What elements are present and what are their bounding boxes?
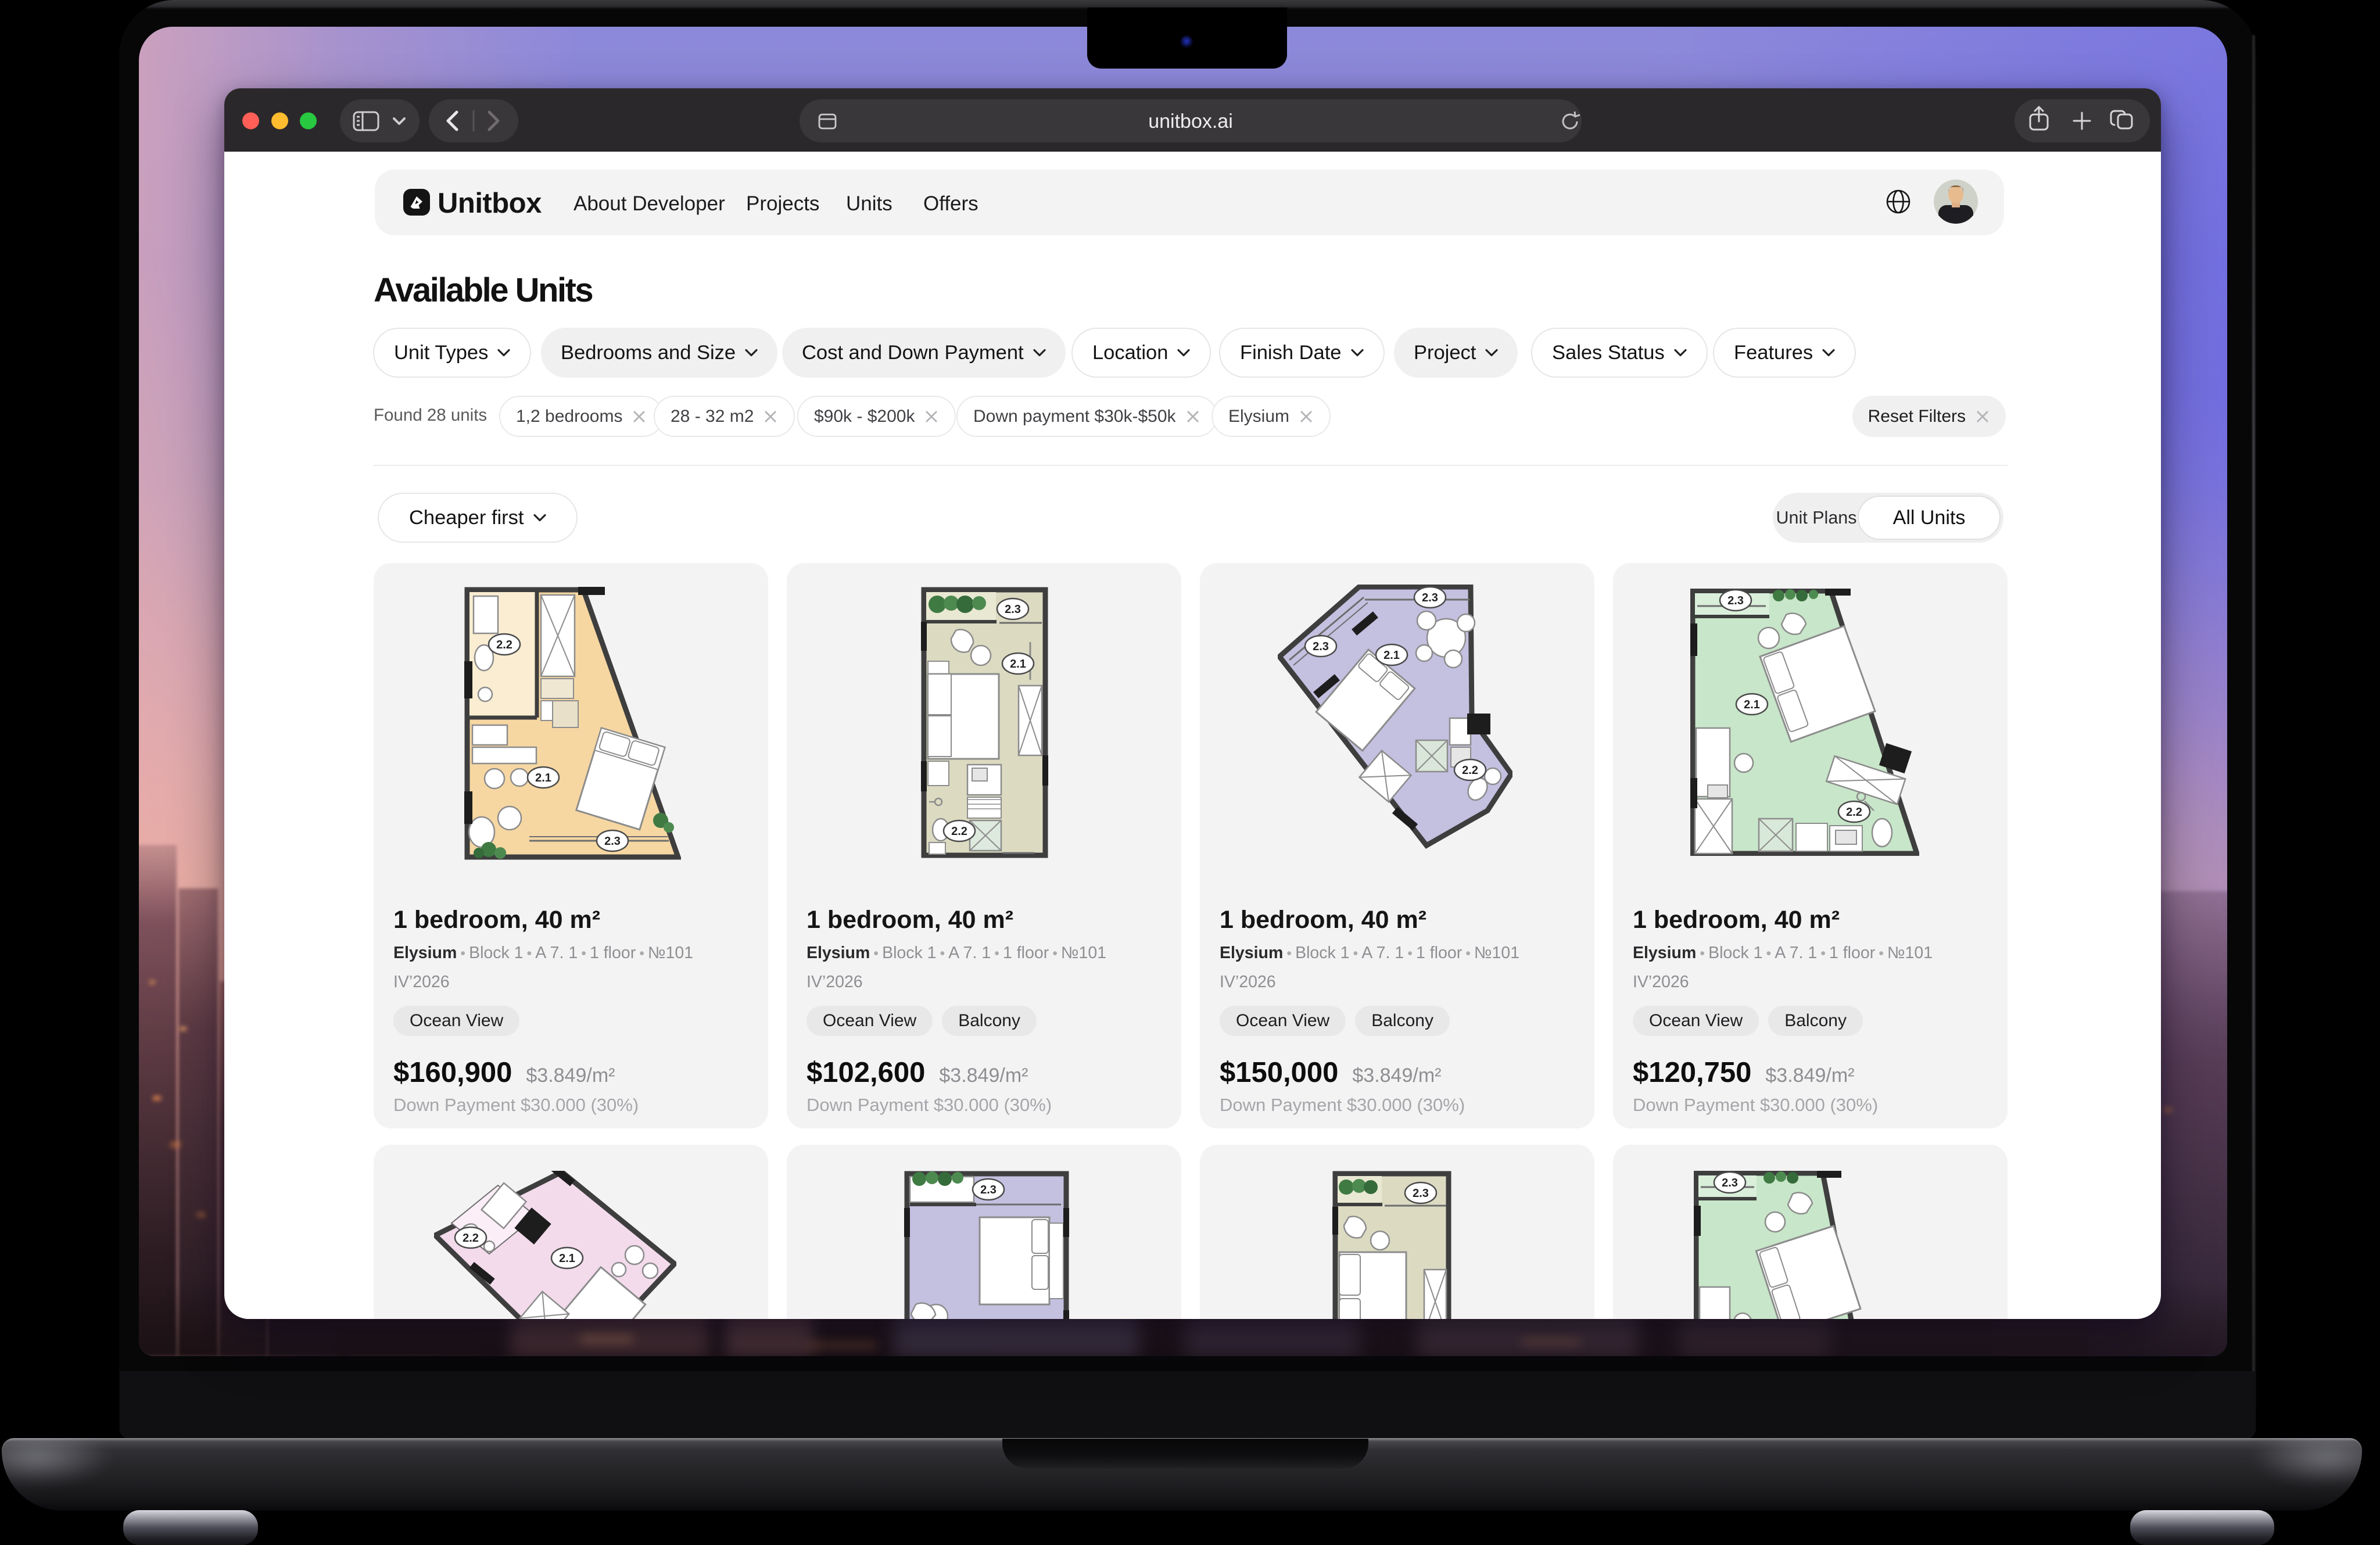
svg-text:2.2: 2.2 [1462,764,1478,777]
svg-text:2.3: 2.3 [1727,594,1744,607]
svg-text:2.2: 2.2 [496,639,512,651]
svg-text:2.1: 2.1 [1383,649,1400,662]
svg-text:2.2: 2.2 [1846,806,1862,819]
svg-text:2.2: 2.2 [463,1232,479,1245]
svg-text:2.1: 2.1 [559,1252,575,1265]
svg-text:2.3: 2.3 [604,835,621,848]
svg-text:2.1: 2.1 [535,772,551,784]
svg-text:2.1: 2.1 [1010,658,1026,671]
svg-text:2.3: 2.3 [980,1184,997,1196]
svg-text:2.3: 2.3 [1005,603,1021,616]
svg-text:2.3: 2.3 [1413,1187,1429,1200]
svg-text:2.1: 2.1 [1744,698,1760,711]
svg-text:2.3: 2.3 [1313,640,1329,653]
svg-text:2.3: 2.3 [1422,592,1438,604]
svg-text:2.2: 2.2 [951,825,967,838]
svg-text:2.3: 2.3 [1722,1177,1738,1189]
